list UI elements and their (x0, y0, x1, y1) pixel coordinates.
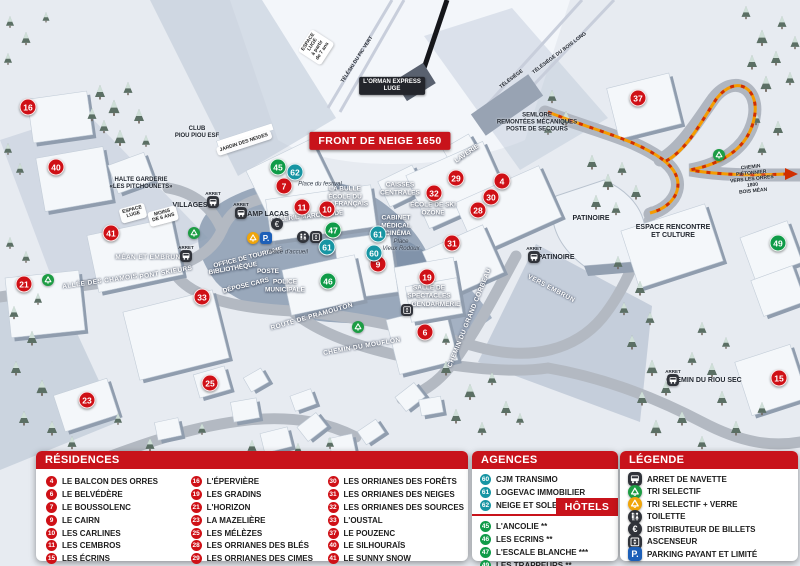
map-marker-46[interactable]: 46 (320, 273, 337, 290)
item-label: LE CAIRN (62, 516, 100, 525)
map-label: TÉLÉSIÈGE DU BOIS LONG (532, 32, 588, 76)
map-label: ROUTE DE PRAMOUTON (270, 302, 354, 333)
number-badge: 29 (191, 553, 202, 564)
number-badge: 23 (191, 515, 202, 526)
list-item: 47L'ESCALE BLANCHE *** (480, 546, 618, 559)
map-label: SALLE DE SPECTACLES (407, 284, 450, 299)
bus-stop-caption: ARRET (178, 245, 194, 250)
map-label: PONT SKIEURS (139, 265, 193, 282)
map-marker-25[interactable]: 25 (202, 375, 219, 392)
list-item: 15LES ÉCRINS (46, 552, 191, 565)
number-badge: 28 (191, 540, 202, 551)
item-label: LE POUZENC (344, 529, 396, 538)
map-marker-60[interactable]: 60 (366, 245, 383, 262)
map-label: CHEMIN DU GRAND CORBEAU (447, 267, 494, 368)
map-marker-4[interactable]: 4 (494, 173, 511, 190)
list-item: 10LES CARLINES (46, 527, 191, 540)
map-marker-21[interactable]: 21 (16, 276, 33, 293)
residences-panel: RÉSIDENCES 4LE BALCON DES ORRES6LE BELVÉ… (36, 451, 468, 561)
list-item: 41LE SUNNY SNOW (328, 552, 464, 565)
item-label: L'ESCALE BLANCHE *** (496, 548, 588, 557)
item-label: LE SILHOURAÏS (344, 541, 406, 550)
item-label: LES MÉLÈZES (207, 529, 263, 538)
map-label: LAVERIE (453, 143, 480, 165)
map-icon: ARRET (207, 196, 219, 208)
map-label: CHEMIN DU MOUFLON (323, 336, 401, 357)
number-badge: 19 (191, 489, 202, 500)
number-badge: 25 (191, 528, 202, 539)
recycle-green-icon (188, 227, 200, 239)
list-item: 21L'HORIZON (191, 501, 328, 514)
map-marker-47[interactable]: 47 (325, 222, 342, 239)
map-icon: P. (260, 232, 272, 244)
item-label: LES ECRINS ** (496, 535, 552, 544)
number-badge: 16 (191, 476, 202, 487)
map-label: CHEMIN PIÉTONNIER VERS LES ORRES 1800 BO… (727, 163, 778, 197)
item-label: L'HORIZON (207, 503, 251, 512)
map-label: Place d'accueil (268, 249, 308, 256)
number-badge: 62 (480, 500, 491, 511)
bus-stop-caption: ARRET (233, 202, 249, 207)
bus-stop-caption: ARRET (205, 191, 221, 196)
toilet-icon (297, 231, 309, 243)
map-marker-37[interactable]: 37 (630, 90, 647, 107)
item-label: LES TRAPPEURS ** (496, 561, 572, 566)
resort-map: FRONT DE NEIGE 1650 L'ORMAN EXPRESS LUGE… (0, 0, 800, 566)
map-label: PATINOIRE (572, 215, 609, 223)
map-marker-49[interactable]: 49 (770, 235, 787, 252)
map-icon: ARRET (235, 207, 247, 219)
map-label: JARDIN DES NEIGES (216, 130, 273, 156)
map-label: TÉLÉSIÈGE (499, 69, 525, 91)
list-item: 7LE BOUSSOLENC (46, 501, 191, 514)
list-item: 16L'ÉPERVIÈRE (191, 475, 328, 488)
item-label: LE BELVÉDÈRE (62, 490, 123, 499)
number-badge: 40 (328, 540, 339, 551)
map-marker-61[interactable]: 61 (370, 226, 387, 243)
number-badge: 46 (480, 534, 491, 545)
item-label: LES GRADINS (207, 490, 262, 499)
map-marker-30[interactable]: 30 (483, 189, 500, 206)
map-icon: ARRET (528, 251, 540, 263)
elevator-icon (401, 304, 413, 316)
legend-title: LÉGENDE (620, 451, 798, 469)
map-label: ESPACE LUGE à partir de 7 ans (298, 29, 335, 65)
recycle-green-icon (42, 274, 54, 286)
list-item: 40LE SILHOURAÏS (328, 539, 464, 552)
recycle-orange-icon (247, 232, 259, 244)
map-marker-15[interactable]: 15 (771, 370, 788, 387)
number-badge: 15 (46, 553, 57, 564)
list-item: 4LE BALCON DES ORRES (46, 475, 191, 488)
map-label: CAISSES CENTRALES (380, 181, 420, 196)
map-marker-11[interactable]: 11 (294, 199, 311, 216)
map-label: BIBLIOTHÈQUE (208, 261, 258, 277)
map-label: CINÉMA (385, 230, 411, 238)
map-icon: ARRET (180, 250, 192, 262)
item-label: L'ÉPERVIÈRE (207, 477, 259, 486)
item-label: LES ORRIANES DES BLÉS (207, 541, 309, 550)
map-icon (297, 231, 309, 243)
map-label: MOINS DE 6 ANS (147, 205, 179, 227)
map-label: POLICE MUNICIPALE (265, 278, 305, 293)
bus-stop-caption: ARRET (665, 369, 681, 374)
list-item: 30LES ORRIANES DES FORÊTS (328, 475, 464, 488)
list-item: 28LES ORRIANES DES BLÉS (191, 539, 328, 552)
map-label: Place du festival (298, 181, 342, 188)
number-badge: 61 (480, 487, 491, 498)
item-label: LES ORRIANES DES CIMES (207, 554, 313, 563)
item-label: CJM TRANSIMO (496, 475, 558, 484)
map-marker-31[interactable]: 31 (444, 235, 461, 252)
legend-label: TRI SELECTIF + VERRE (647, 500, 737, 509)
map-marker-23[interactable]: 23 (79, 392, 96, 409)
number-badge: 45 (480, 521, 491, 532)
number-badge: 4 (46, 476, 57, 487)
map-label: ESPACE LUGE (118, 202, 147, 223)
item-label: LES CARLINES (62, 529, 121, 538)
list-item: 37LE POUZENC (328, 527, 464, 540)
map-label: CLUB PIOU PIOU ESF (175, 126, 219, 140)
item-label: LES ORRIANES DES SOURCES (344, 503, 464, 512)
item-label: LOGEVAC IMMOBILIER (496, 488, 585, 497)
number-badge: 49 (480, 560, 491, 566)
list-item: 46LES ECRINS ** (480, 533, 618, 546)
map-marker-33[interactable]: 33 (194, 289, 211, 306)
list-item: 33L'OUSTAL (328, 514, 464, 527)
item-label: LE BOUSSOLENC (62, 503, 131, 512)
residences-column-3: 30LES ORRIANES DES FORÊTS31LES ORRIANES … (328, 475, 464, 565)
list-item: 45L'ANCOLIE ** (480, 520, 618, 533)
number-badge: 31 (328, 489, 339, 500)
map-label: PATINOIRE (537, 254, 574, 262)
map-marker-19[interactable]: 19 (419, 269, 436, 286)
legend-panel: LÉGENDE ARRET DE NAVETTETRI SELECTIFTRI … (620, 451, 798, 561)
map-marker-29[interactable]: 29 (448, 170, 465, 187)
legend-label: DISTRIBUTEUR DE BILLETS (647, 525, 755, 534)
map-label: ESPACE RENCONTRE ET CULTURE (636, 224, 711, 241)
map-label: L'ORMAN EXPRESS LUGE (359, 77, 425, 95)
legend-label: TOILETTE (647, 512, 686, 521)
hotels-title: HÔTELS (556, 498, 618, 515)
map-label: GENDARMERIE (412, 301, 461, 309)
legend-item: TRI SELECTIF + VERRE (628, 498, 798, 511)
bus-stop-caption: ARRET (526, 246, 542, 251)
map-marker-45[interactable]: 45 (270, 159, 287, 176)
number-badge: 47 (480, 547, 491, 558)
item-label: LE SUNNY SNOW (344, 554, 411, 563)
legend-item: ARRET DE NAVETTE (628, 473, 798, 486)
residences-column-2: 16L'ÉPERVIÈRE19LES GRADINS21L'HORIZON23L… (191, 475, 328, 565)
legend-item: ASCENSEUR (628, 536, 798, 549)
legend-label: ARRET DE NAVETTE (647, 475, 727, 484)
map-icon (42, 274, 54, 286)
map-label: ALLÉE DES CHAMOIS (62, 273, 138, 291)
map-marker-10[interactable]: 10 (319, 201, 336, 218)
number-badge: 6 (46, 489, 57, 500)
bus-icon (667, 374, 679, 386)
item-label: LES ÉCRINS (62, 554, 110, 563)
map-marker-28[interactable]: 28 (470, 202, 487, 219)
number-badge: 33 (328, 515, 339, 526)
list-item: 23LA MAZELIÈRE (191, 514, 328, 527)
number-badge: 41 (328, 553, 339, 564)
item-label: NEIGE ET SOLEIL (496, 501, 564, 510)
agencies-hotels-panel: AGENCES IMMOBILIÈRES 60CJM TRANSIMO61LOG… (472, 451, 618, 561)
map-marker-61[interactable]: 61 (319, 239, 336, 256)
map-label: VILLAGES (172, 202, 207, 210)
residences-column-1: 4LE BALCON DES ORRES6LE BELVÉDÈRE7LE BOU… (46, 475, 191, 565)
number-badge: 10 (46, 528, 57, 539)
map-marker-62[interactable]: 62 (287, 164, 304, 181)
bus-icon (528, 251, 540, 263)
map-label: DÉPOSE CARS (222, 277, 270, 296)
recycle-green-icon (352, 321, 364, 333)
number-badge: 37 (328, 528, 339, 539)
recycle-green-icon (713, 149, 725, 161)
legend-item: TOILETTE (628, 511, 798, 524)
number-badge: 32 (328, 502, 339, 513)
number-badge: 7 (46, 502, 57, 513)
map-icon (713, 149, 725, 161)
map-marker-32[interactable]: 32 (426, 185, 443, 202)
bus-icon (207, 196, 219, 208)
list-item: 49LES TRAPPEURS ** (480, 559, 618, 566)
map-icon (188, 227, 200, 239)
number-badge: 21 (191, 502, 202, 513)
item-label: LES ORRIANES DES FORÊTS (344, 477, 457, 486)
map-marker-16[interactable]: 16 (20, 99, 37, 116)
map-label: MÉAN ET EMBRUN (115, 254, 180, 262)
map-label: OFFICE DE TOURISME (213, 246, 283, 271)
map-marker-7[interactable]: 7 (276, 178, 293, 195)
map-icon (352, 321, 364, 333)
item-label: LE BALCON DES ORRES (62, 477, 158, 486)
list-item: 31LES ORRIANES DES NEIGES (328, 488, 464, 501)
map-label: VERS EMBRUN (526, 273, 576, 304)
map-icon: € (271, 218, 283, 230)
item-label: L'ANCOLIE ** (496, 522, 547, 531)
bus-icon (235, 207, 247, 219)
map-label: HALTE GARDERIE «LES PITCHOUNETS» (109, 177, 172, 191)
list-item: 32LES ORRIANES DES SOURCES (328, 501, 464, 514)
list-item: 29LES ORRIANES DES CIMES (191, 552, 328, 565)
item-label: LA MAZELIÈRE (207, 516, 266, 525)
map-marker-41[interactable]: 41 (103, 225, 120, 242)
list-item: 11LES CEMBROS (46, 539, 191, 552)
residences-title: RÉSIDENCES (36, 451, 468, 469)
map-marker-6[interactable]: 6 (417, 324, 434, 341)
legend-item: P.PARKING PAYANT ET LIMITÉ (628, 548, 798, 561)
item-label: L'OUSTAL (344, 516, 383, 525)
map-icon (247, 232, 259, 244)
map-label: SEMLORE REMONTÉES MÉCANIQUES POSTE DE SE… (497, 112, 577, 133)
item-label: LES ORRIANES DES NEIGES (344, 490, 455, 499)
legend-label: TRI SELECTIF (647, 487, 701, 496)
legend-item: €DISTRIBUTEUR DE BILLETS (628, 523, 798, 536)
legend-label: ASCENSEUR (647, 537, 697, 546)
number-badge: 9 (46, 515, 57, 526)
number-badge: 11 (46, 540, 57, 551)
legend-item: TRI SELECTIF (628, 486, 798, 499)
map-label: POSTE (257, 268, 279, 276)
map-label: CABINET MÉDICAL (381, 214, 411, 229)
map-icon (401, 304, 413, 316)
parking-icon: P. (260, 232, 272, 244)
map-label: TÉLÉSKI DU PIC VERT (341, 36, 375, 85)
list-item: 25LES MÉLÈZES (191, 527, 328, 540)
map-label: ÉCOLE DE SKI OZONE (410, 201, 456, 216)
number-badge: 60 (480, 474, 491, 485)
agencies-title: AGENCES IMMOBILIÈRES (472, 451, 618, 469)
map-label: Place Vieux Rodoux (382, 239, 419, 253)
map-marker-40[interactable]: 40 (48, 159, 65, 176)
legend-list: ARRET DE NAVETTETRI SELECTIFTRI SELECTIF… (620, 469, 798, 561)
euro-icon: € (271, 218, 283, 230)
legend-label: PARKING PAYANT ET LIMITÉ (647, 550, 757, 559)
list-item: 6LE BELVÉDÈRE (46, 488, 191, 501)
map-icon: ARRET (667, 374, 679, 386)
list-item: 9LE CAIRN (46, 514, 191, 527)
bus-icon (180, 250, 192, 262)
hotels-list: 45L'ANCOLIE **46LES ECRINS **47L'ESCALE … (472, 516, 618, 566)
front-de-neige-banner: FRONT DE NEIGE 1650 (309, 132, 450, 150)
number-badge: 30 (328, 476, 339, 487)
list-item: 19LES GRADINS (191, 488, 328, 501)
parking-icon: P. (628, 547, 642, 561)
item-label: LES CEMBROS (62, 541, 121, 550)
